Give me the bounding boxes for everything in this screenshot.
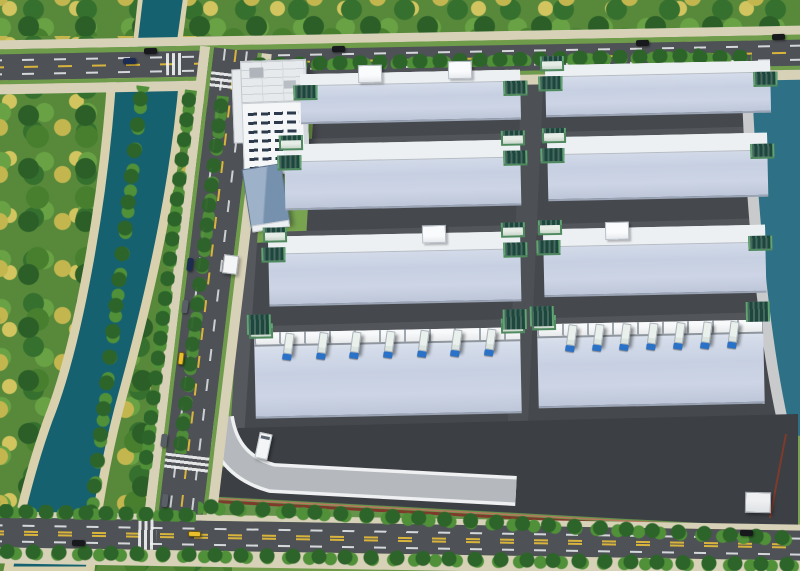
dock-truck [620,323,632,345]
aerial-industrial-park-scene [0,0,800,571]
dock-truck [384,330,396,352]
dock-truck [566,324,578,346]
taxi-yellow [188,531,201,537]
dock-truck [593,324,605,346]
stair-tower-green [753,71,777,72]
dock-truck [647,322,659,344]
stair-tower-green [538,76,562,77]
stair-tower-green [277,155,301,156]
car-black [72,540,85,546]
dock-truck [451,329,463,351]
stair-tower-green [530,306,554,307]
stair-tower-green [293,85,317,86]
loading-dock [254,327,521,361]
stair-tower-green [542,128,566,129]
crosswalk [164,453,210,474]
guard-booth-west [222,254,239,275]
car-black [740,530,753,536]
car-black [636,40,649,46]
crosswalk [166,53,182,75]
rooftop-penthouse [448,61,472,79]
stair-tower-green [748,236,772,237]
dock-truck [485,328,497,350]
rooftop-penthouse [358,65,382,83]
dock-truck [728,321,740,343]
rooftop-penthouse [605,222,629,240]
dock-truck [674,322,686,344]
stair-tower-green [503,242,527,243]
stair-tower-green [750,144,774,145]
dock-truck [317,332,329,354]
stair-tower-green [503,309,527,310]
stair-tower-green [536,240,560,241]
stair-tower-green [501,222,525,223]
stair-tower-green [540,56,564,57]
dock-truck [283,333,295,355]
stair-tower-green [503,81,527,82]
stair-tower-green [261,247,285,248]
dock-truck [350,331,362,353]
car-black [332,46,345,52]
car-black [772,34,785,40]
stair-tower-green [279,135,303,136]
car-navy [123,58,136,64]
stair-tower-green [540,148,564,149]
rooftop-penthouse [422,225,446,243]
stair-tower-green [746,301,770,302]
dock-truck [418,330,430,352]
gatehouse-southeast [745,492,771,513]
stair-tower-green [503,150,527,151]
car-black [144,48,157,54]
dock-truck [701,321,713,343]
loading-dock [537,320,764,353]
stair-tower-green [501,130,525,131]
stair-tower-green [247,314,271,315]
stair-tower-green [538,220,562,221]
stair-tower-green [263,227,287,228]
